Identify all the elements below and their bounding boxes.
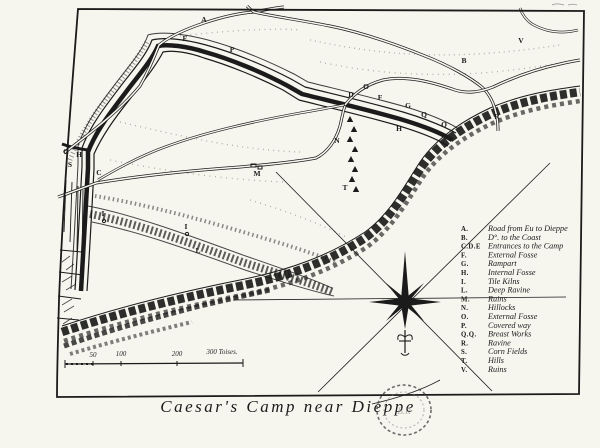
map-letter-S: S	[68, 160, 72, 169]
legend-label-H: Internal Fosse	[487, 268, 536, 277]
map-letter-T: T	[342, 183, 347, 192]
legend-key-S: S.	[461, 349, 467, 356]
legend-label-A: Road from Eu to Dieppe	[487, 224, 568, 233]
map-letter-R: R	[494, 112, 500, 121]
map-letter-I: I	[185, 222, 188, 231]
stamp-letters: B.R	[397, 406, 411, 416]
legend-label-B: D°. to the Coast	[487, 233, 542, 242]
map-letter-A: A	[201, 15, 207, 24]
scale-label-300-toises: 300 Toises.	[205, 348, 238, 356]
kiln-icon	[185, 232, 188, 235]
legend-key-T: T.	[461, 358, 468, 365]
legend-key-V: V.	[461, 367, 468, 374]
map-letter-C: C	[96, 168, 101, 177]
legend-key-N: N.	[461, 305, 468, 312]
scale-label-50: 50	[90, 351, 98, 359]
map-letter-B: B	[461, 56, 466, 65]
legend-label-G: Rampart	[487, 259, 517, 268]
map-letter-H: H	[396, 124, 402, 133]
legend-key-H: H.	[461, 270, 469, 277]
legend-label-O: External Fosse	[487, 312, 538, 321]
legend-label-V: Ruins	[487, 365, 507, 374]
legend-label-M: Ruins	[487, 294, 507, 303]
legend-label-R: Ravine	[487, 338, 511, 347]
map-letter-V: V	[518, 36, 524, 45]
map-letter-D: D	[348, 90, 354, 99]
map-letter-F: F	[378, 93, 383, 102]
engraved-map-page: A.Road from Eu to DieppeB.D°. to the Coa…	[0, 0, 600, 448]
map-letter-G: G	[63, 147, 69, 156]
map-canvas: A.Road from Eu to DieppeB.D°. to the Coa…	[0, 0, 600, 448]
legend-label-L: Deep Ravine	[487, 286, 530, 295]
map-letter-M: M	[253, 169, 260, 178]
fleur-de-lis-icon	[398, 330, 412, 355]
map-letter-G: G	[405, 101, 411, 110]
map-letter-N: N	[334, 136, 340, 145]
legend-key-I: I.	[461, 279, 466, 286]
map-letter-L: L	[195, 246, 200, 255]
map-letter-E: E	[182, 34, 187, 43]
roads	[58, 6, 580, 197]
map-letter-H: H	[76, 150, 82, 159]
map-letter-Q: Q	[441, 120, 447, 129]
hillock-icons	[347, 116, 359, 192]
legend-label-QQ: Breast Works	[488, 330, 531, 339]
legend-label-N: Hillocks	[487, 303, 515, 312]
legend-key-A: A.	[461, 226, 468, 233]
legend-key-CDE: C.D.E	[461, 244, 481, 251]
legend-label-P: Covered way	[488, 321, 531, 330]
legend-key-G: G.	[461, 261, 469, 268]
compass-star	[369, 251, 441, 329]
legend-label-CDE: Entrances to the Camp	[487, 242, 563, 251]
legend-key-R: R.	[461, 340, 468, 347]
legend-key-O: O.	[461, 314, 469, 321]
external-fosse-outer-line	[71, 33, 459, 289]
map-letter-Q: Q	[421, 110, 427, 119]
frame-corner-mark	[552, 4, 577, 5]
compass-line-nw-se	[276, 172, 492, 391]
legend-label-I: Tile Kilns	[488, 277, 520, 286]
scale-label-100: 100	[116, 350, 127, 358]
legend-key-P: P.	[461, 323, 467, 330]
map-letter-P: P	[230, 45, 235, 54]
internal-fosse-line	[87, 51, 448, 291]
legend-key-L: L.	[461, 288, 468, 295]
legend-label-F: External Fosse	[487, 250, 538, 259]
middle-valley-road	[58, 106, 345, 197]
map-letter-I: I	[102, 209, 105, 218]
scale-label-200: 200	[172, 350, 183, 358]
legend-label-T: Hills	[487, 356, 504, 365]
scale-bar: 50 100 200 300 Toises.	[65, 348, 243, 368]
legend-key-B: B.	[461, 235, 468, 242]
legend-key-M: M.	[461, 296, 470, 303]
legend-key-F: F.	[461, 252, 467, 259]
legend: A.Road from Eu to DieppeB.D°. to the Coa…	[461, 224, 568, 374]
map-letter-O: O	[363, 82, 369, 91]
legend-key-QQ: Q.Q.	[461, 332, 477, 339]
legend-label-S: Corn Fields	[488, 347, 527, 356]
